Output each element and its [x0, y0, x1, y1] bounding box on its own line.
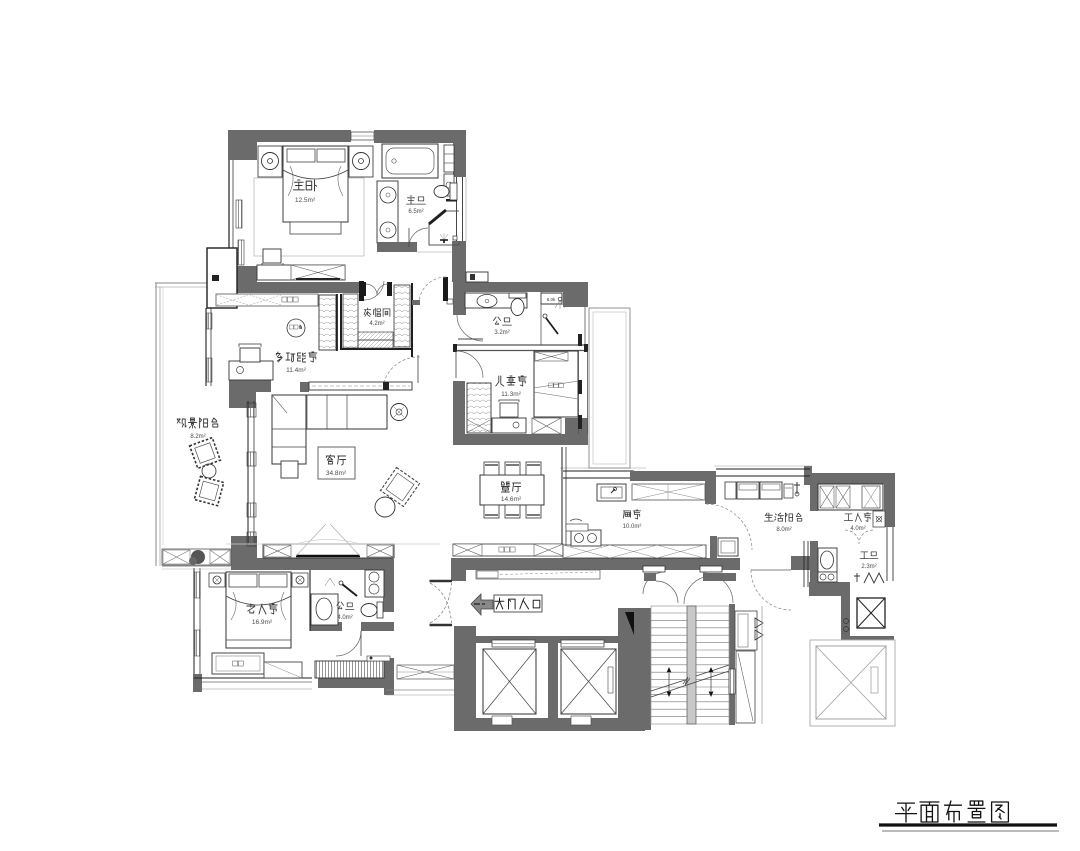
- svg-text:16.9m²: 16.9m²: [252, 619, 273, 626]
- svg-text:6.0k: 6.0k: [547, 297, 556, 302]
- svg-text:11.3m²: 11.3m²: [501, 391, 522, 398]
- svg-text:3.2m²: 3.2m²: [494, 330, 509, 336]
- svg-text:8.0m²: 8.0m²: [776, 527, 791, 533]
- svg-text:4.0m²: 4.0m²: [850, 526, 865, 532]
- svg-text:8.2m²: 8.2m²: [190, 434, 205, 440]
- svg-text:12.5m²: 12.5m²: [295, 197, 316, 204]
- svg-text:10.0m²: 10.0m²: [623, 524, 642, 530]
- svg-text:11.4m²: 11.4m²: [286, 367, 307, 374]
- svg-text:14.6m²: 14.6m²: [501, 496, 522, 503]
- svg-text:4.0m²: 4.0m²: [337, 615, 352, 621]
- svg-text:4.2m²: 4.2m²: [369, 321, 384, 327]
- svg-text:2.3m²: 2.3m²: [861, 564, 876, 570]
- svg-text:34.8m²: 34.8m²: [326, 470, 347, 477]
- svg-text:6.5m²: 6.5m²: [408, 209, 423, 215]
